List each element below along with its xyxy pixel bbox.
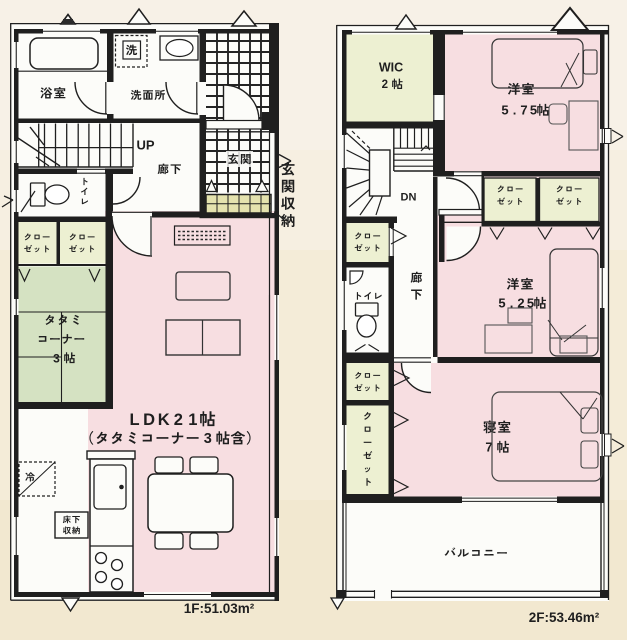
svg-text:.: . (513, 103, 517, 118)
svg-text:DN: DN (401, 192, 417, 204)
svg-text:5: 5 (501, 103, 508, 118)
svg-text:1F:51.03m²: 1F:51.03m² (184, 601, 255, 616)
svg-text:5: 5 (498, 296, 505, 311)
svg-text:3: 3 (204, 431, 212, 447)
svg-text:1: 1 (188, 411, 197, 429)
svg-text:L: L (129, 411, 139, 429)
svg-text:3: 3 (53, 351, 60, 365)
svg-text:2: 2 (382, 79, 388, 91)
svg-text:D: D (143, 411, 155, 429)
svg-text:WIC: WIC (379, 61, 403, 75)
svg-text:UP: UP (136, 138, 154, 153)
svg-text:7: 7 (520, 103, 527, 118)
svg-text:2: 2 (174, 411, 183, 429)
svg-text:5: 5 (530, 103, 537, 118)
svg-text:K: K (158, 411, 170, 429)
svg-text:2F:53.46m²: 2F:53.46m² (529, 610, 600, 625)
